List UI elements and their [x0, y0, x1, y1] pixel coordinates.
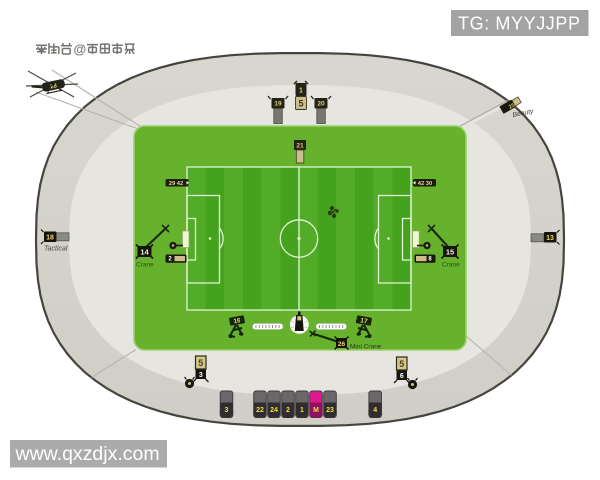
svg-text:22: 22	[256, 407, 264, 414]
svg-text:1: 1	[299, 88, 303, 95]
svg-text:5: 5	[298, 99, 303, 109]
svg-text:TG: MYYJJPP: TG: MYYJJPP	[458, 14, 581, 34]
svg-text:Tactical: Tactical	[44, 246, 68, 253]
svg-text:18: 18	[46, 235, 54, 242]
svg-text:Crane: Crane	[442, 262, 460, 269]
svg-text:www.qxzdjx.com: www.qxzdjx.com	[15, 443, 160, 465]
svg-text:1: 1	[300, 407, 304, 414]
svg-text:13: 13	[546, 235, 554, 242]
svg-text:Mini Crane: Mini Crane	[350, 344, 382, 351]
svg-text:2: 2	[286, 407, 290, 414]
svg-text:29 42: 29 42	[169, 181, 184, 187]
svg-text:5: 5	[198, 358, 203, 368]
svg-text:M: M	[313, 407, 319, 414]
svg-text:23: 23	[326, 407, 334, 414]
svg-text:21: 21	[296, 143, 304, 150]
svg-text:42 30: 42 30	[418, 181, 433, 187]
svg-text:15: 15	[446, 248, 454, 257]
svg-text:20: 20	[317, 101, 325, 108]
svg-text:19: 19	[274, 101, 282, 108]
svg-text:26: 26	[338, 341, 346, 348]
svg-text:6: 6	[400, 373, 404, 380]
svg-text:3: 3	[225, 407, 229, 414]
svg-text:4: 4	[373, 407, 377, 414]
svg-text:24: 24	[270, 407, 278, 414]
svg-text:3: 3	[199, 372, 203, 379]
svg-text:@: @	[74, 42, 87, 57]
svg-text:5: 5	[399, 359, 404, 369]
svg-text:Crane: Crane	[136, 262, 154, 269]
svg-text:14: 14	[140, 248, 149, 257]
